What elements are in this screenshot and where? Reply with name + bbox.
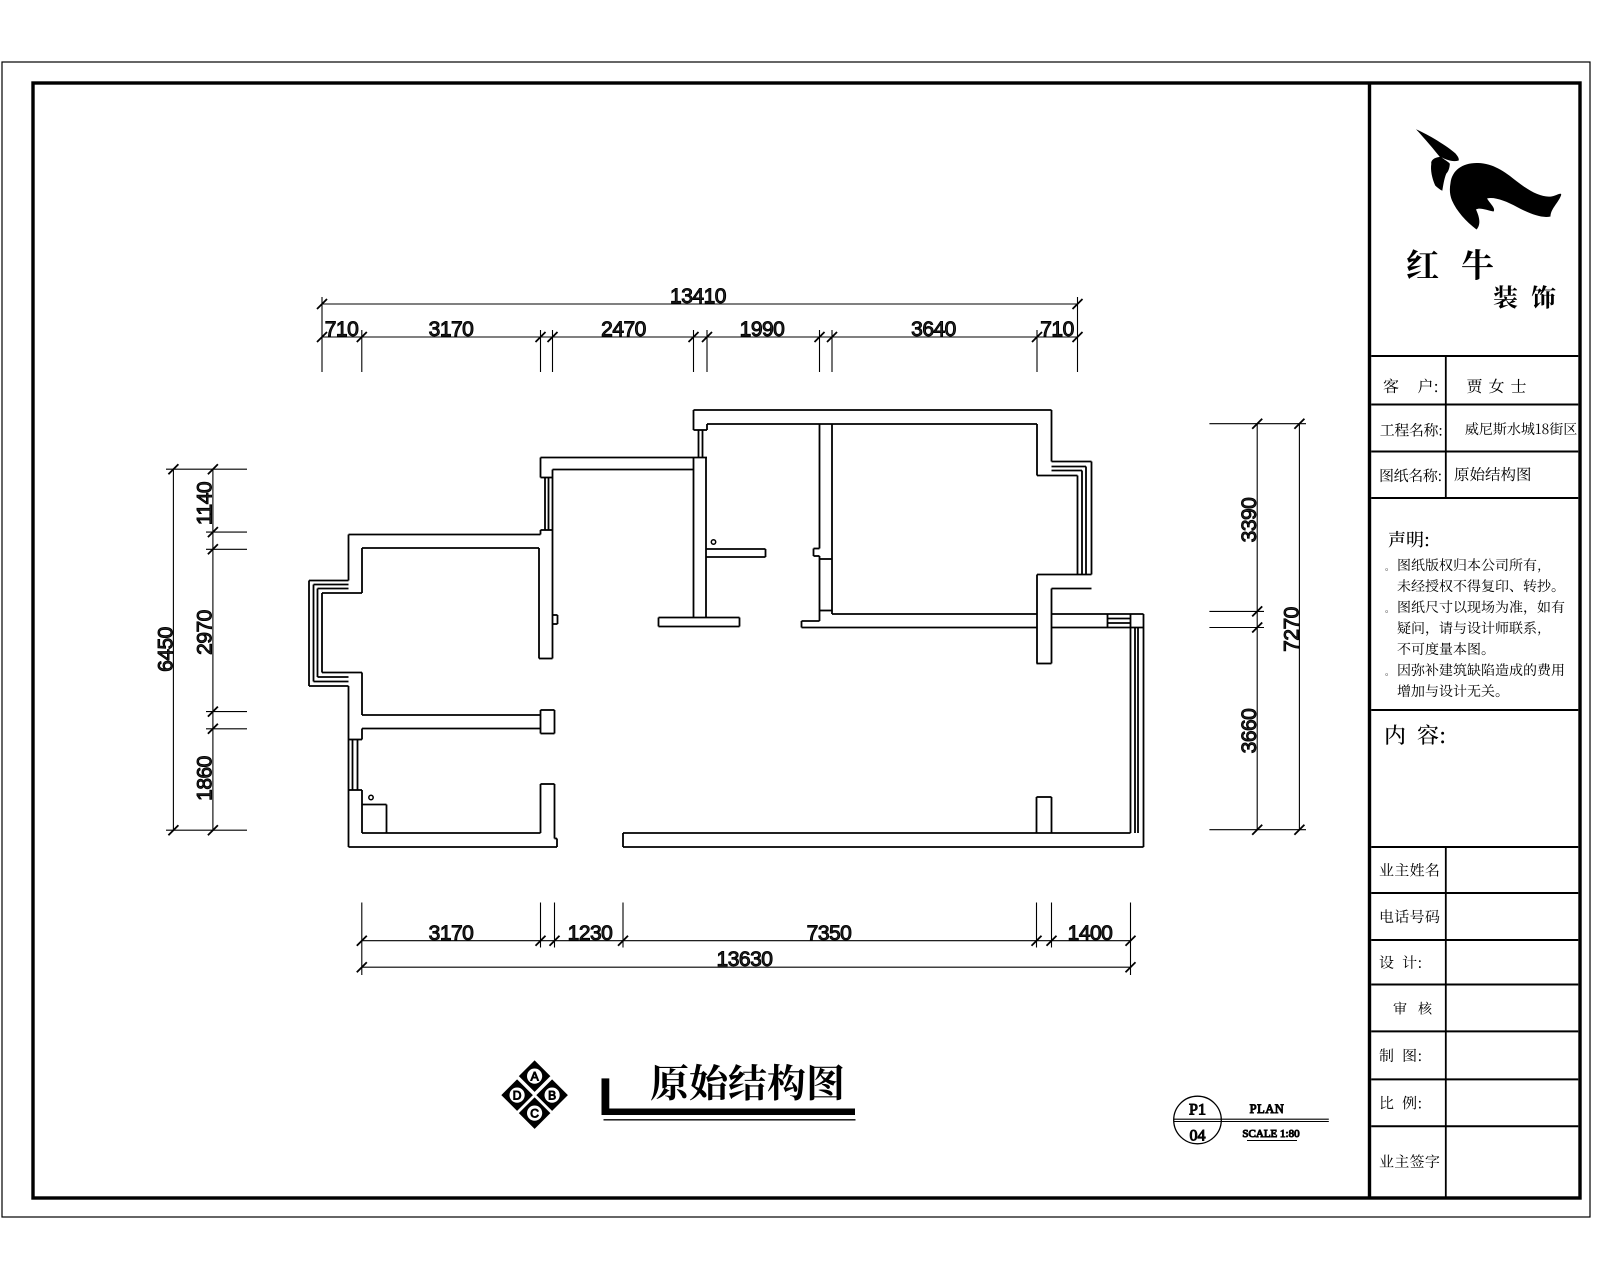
svg-text:1860: 1860 <box>194 756 217 801</box>
svg-text:3170: 3170 <box>429 318 474 341</box>
svg-text:7350: 7350 <box>807 922 852 945</box>
svg-text:P1: P1 <box>1189 1102 1206 1119</box>
svg-text:7270: 7270 <box>1281 607 1304 652</box>
svg-text:3170: 3170 <box>429 922 474 945</box>
svg-text:D: D <box>513 1089 522 1103</box>
svg-text:1990: 1990 <box>740 318 785 341</box>
svg-text:SCALE 1:80: SCALE 1:80 <box>1242 1128 1300 1140</box>
svg-text:3660: 3660 <box>1238 709 1261 754</box>
svg-text:6450: 6450 <box>155 627 178 672</box>
svg-text:710: 710 <box>325 318 359 341</box>
svg-text:13410: 13410 <box>670 285 726 308</box>
svg-text:2470: 2470 <box>601 318 646 341</box>
svg-text:3640: 3640 <box>911 318 956 341</box>
svg-text:04: 04 <box>1190 1128 1206 1145</box>
svg-text:2970: 2970 <box>194 610 217 655</box>
svg-text:1140: 1140 <box>194 482 217 525</box>
svg-text:1230: 1230 <box>568 922 613 945</box>
svg-text:710: 710 <box>1040 318 1074 341</box>
svg-text:PLAN: PLAN <box>1250 1102 1285 1116</box>
svg-text:B: B <box>548 1089 556 1103</box>
svg-text:3390: 3390 <box>1238 498 1261 543</box>
svg-text:1400: 1400 <box>1068 922 1113 945</box>
svg-text:C: C <box>530 1107 539 1121</box>
svg-text:13630: 13630 <box>717 948 773 971</box>
svg-text:A: A <box>531 1070 539 1084</box>
